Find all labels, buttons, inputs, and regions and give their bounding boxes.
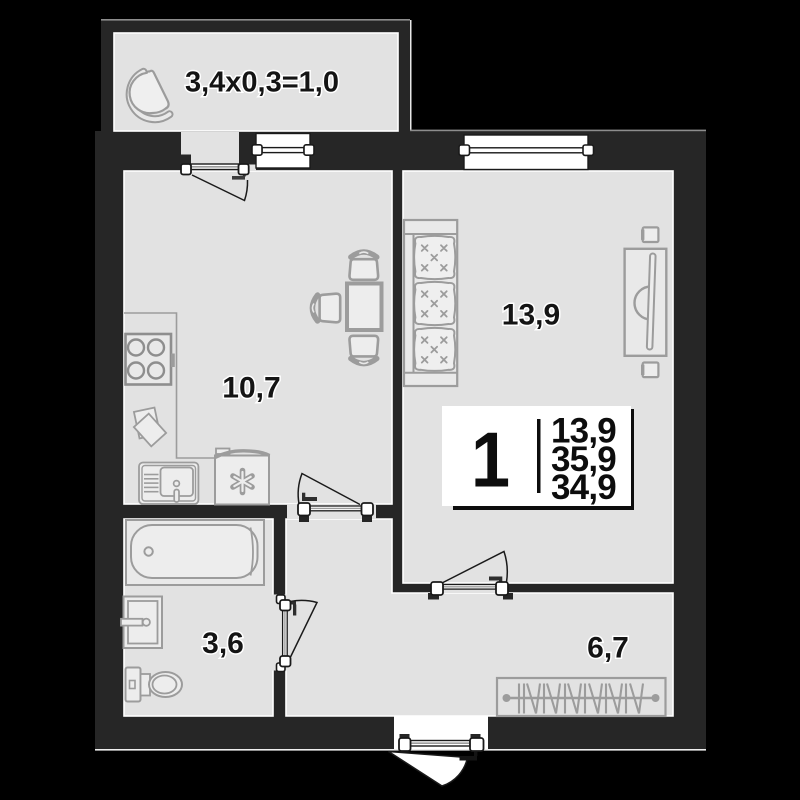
svg-text:10,7: 10,7 — [222, 372, 280, 405]
svg-text:6,7: 6,7 — [587, 632, 629, 665]
svg-text:3,4x0,3=1,0: 3,4x0,3=1,0 — [185, 67, 339, 99]
svg-text:34,9: 34,9 — [551, 468, 616, 507]
svg-text:13,9: 13,9 — [502, 299, 560, 332]
svg-text:1: 1 — [471, 416, 510, 503]
svg-text:3,6: 3,6 — [202, 627, 244, 660]
